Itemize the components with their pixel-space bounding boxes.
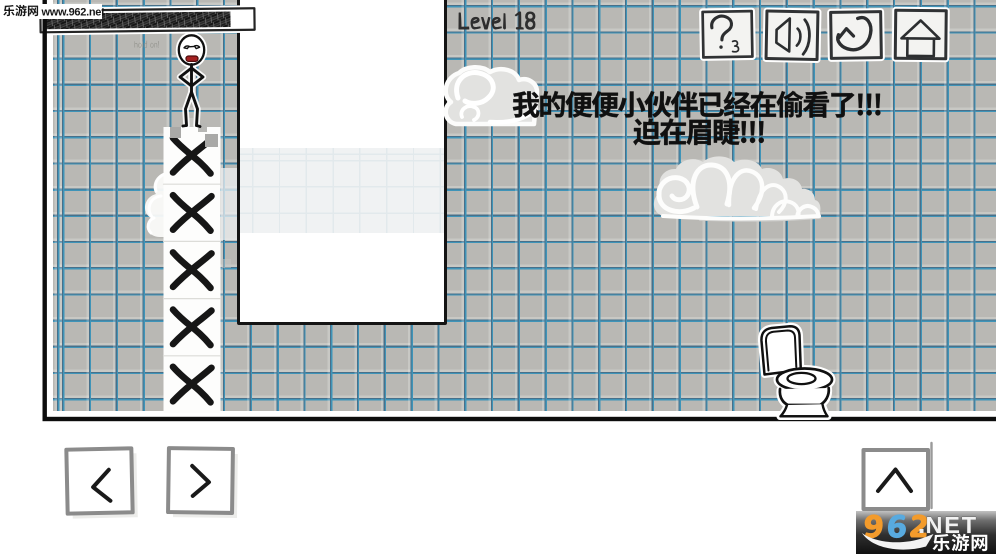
svg-text:www.962.net: www.962.net bbox=[41, 6, 106, 18]
